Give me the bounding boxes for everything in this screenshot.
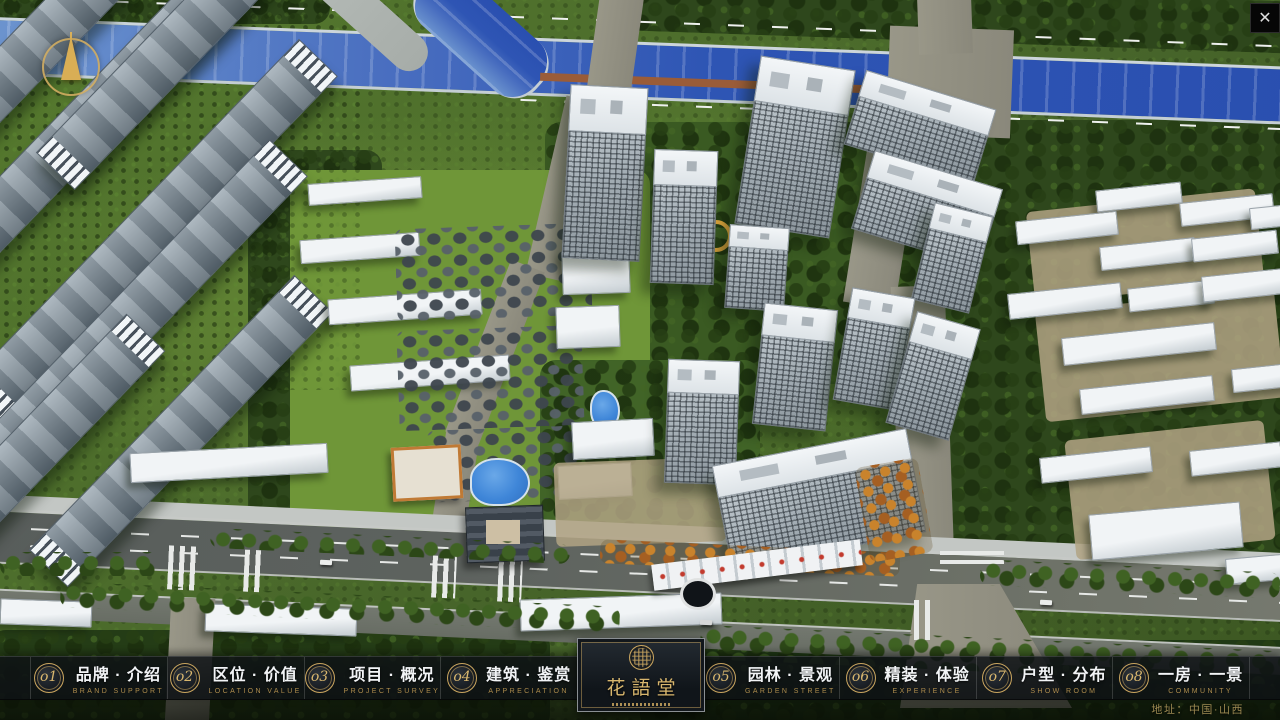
tower-building [650, 149, 719, 285]
nav-item-garden[interactable]: o5 园林 · 景观GARDEN STREET [702, 657, 839, 699]
crosswalk [167, 545, 199, 590]
swimming-pool [470, 458, 530, 506]
nav-number-badge: o6 [846, 663, 876, 693]
street-trees [0, 552, 160, 576]
nav-number-badge: o4 [447, 663, 477, 693]
nav-label-en: PROJECT SURVEY [344, 688, 441, 695]
nav-item-floorplan[interactable]: o7 户型 · 分布SHOW ROOM [976, 657, 1113, 699]
nav-number-badge: o8 [1119, 663, 1149, 693]
entrance-gate-circle [680, 578, 716, 610]
nav-item-brand[interactable]: o1 品牌 · 介绍BRAND SUPPORT [30, 657, 167, 699]
nav-label-zh: 户型 · 分布 [1021, 661, 1106, 685]
nav-item-interior[interactable]: o6 精装 · 体验EXPERIENCE [839, 657, 976, 699]
project-logo-panel[interactable]: 花語堂 [577, 638, 705, 712]
nav-item-architecture[interactable]: o4 建筑 · 鉴赏APPRECIATION [440, 657, 578, 699]
nav-label-zh: 项目 · 概况 [349, 661, 434, 685]
nav-label-en: LOCATION VALUE [209, 688, 302, 695]
nav-group-left: o1 品牌 · 介绍BRAND SUPPORT o2 区位 · 价值LOCATI… [30, 657, 578, 699]
nav-group-right: o5 园林 · 景观GARDEN STREET o6 精装 · 体验EXPERI… [702, 657, 1250, 699]
nav-label-zh: 区位 · 价值 [213, 661, 298, 685]
nav-label-zh: 精装 · 体验 [885, 661, 970, 685]
nav-label-en: APPRECIATION [488, 688, 568, 695]
tower-roof [761, 302, 838, 343]
nav-item-project[interactable]: o3 项目 · 概况PROJECT SURVEY [304, 657, 441, 699]
nav-label-zh: 建筑 · 鉴赏 [486, 661, 571, 685]
tower-roof [728, 224, 789, 251]
nav-label-en: BRAND SUPPORT [73, 688, 164, 695]
nav-item-location[interactable]: o2 区位 · 价值LOCATION VALUE [167, 657, 304, 699]
nav-number-badge: o7 [982, 663, 1012, 693]
close-button[interactable]: ✕ [1250, 3, 1280, 33]
tower-building [724, 224, 790, 312]
nav-label-en: COMMUNITY [1168, 688, 1233, 695]
crosswalk [497, 559, 523, 602]
project-logo-title: 花語堂 [600, 673, 681, 700]
compass-icon [42, 38, 100, 96]
car [320, 560, 332, 566]
tower-roof [667, 359, 740, 395]
lowrise-building [571, 418, 655, 460]
north-approach-road [917, 0, 973, 55]
masterplan-render [0, 0, 1280, 720]
tower-roof [568, 84, 648, 135]
crosswalk [243, 550, 265, 593]
round-seal-icon [629, 645, 654, 670]
crosswalk [431, 555, 457, 598]
nav-number-badge: o1 [34, 663, 64, 693]
slab-building [1249, 204, 1280, 230]
nav-number-badge: o5 [706, 663, 736, 693]
nav-label-zh: 品牌 · 介绍 [76, 661, 161, 685]
logo-subtext [612, 703, 670, 706]
sales-presentation-window: ✕ o1 品牌 · 介绍BRAND SUPPORT o2 区位 · 价值LOCA… [0, 0, 1280, 720]
nav-number-badge: o2 [170, 663, 200, 693]
nav-label-en: EXPERIENCE [893, 688, 962, 695]
address-label: 地址：中国·山西 [1151, 701, 1244, 717]
tower-roof [653, 149, 718, 188]
nav-label-en: GARDEN STREET [745, 688, 836, 695]
nav-label-zh: 园林 · 景观 [748, 661, 833, 685]
kindergarten-compound [391, 444, 464, 502]
lowrise-building [555, 305, 620, 349]
nav-label-zh: 一房 · 一景 [1158, 661, 1243, 685]
tower-building [752, 302, 838, 431]
car [1040, 600, 1052, 606]
compass-needle [61, 36, 81, 80]
tower-building [562, 84, 649, 262]
nav-item-community[interactable]: o8 一房 · 一景COMMUNITY [1112, 657, 1250, 699]
nav-label-en: SHOW ROOM [1030, 688, 1097, 695]
slab-building [1231, 363, 1280, 393]
car [700, 620, 712, 626]
nav-number-badge: o3 [305, 663, 335, 693]
